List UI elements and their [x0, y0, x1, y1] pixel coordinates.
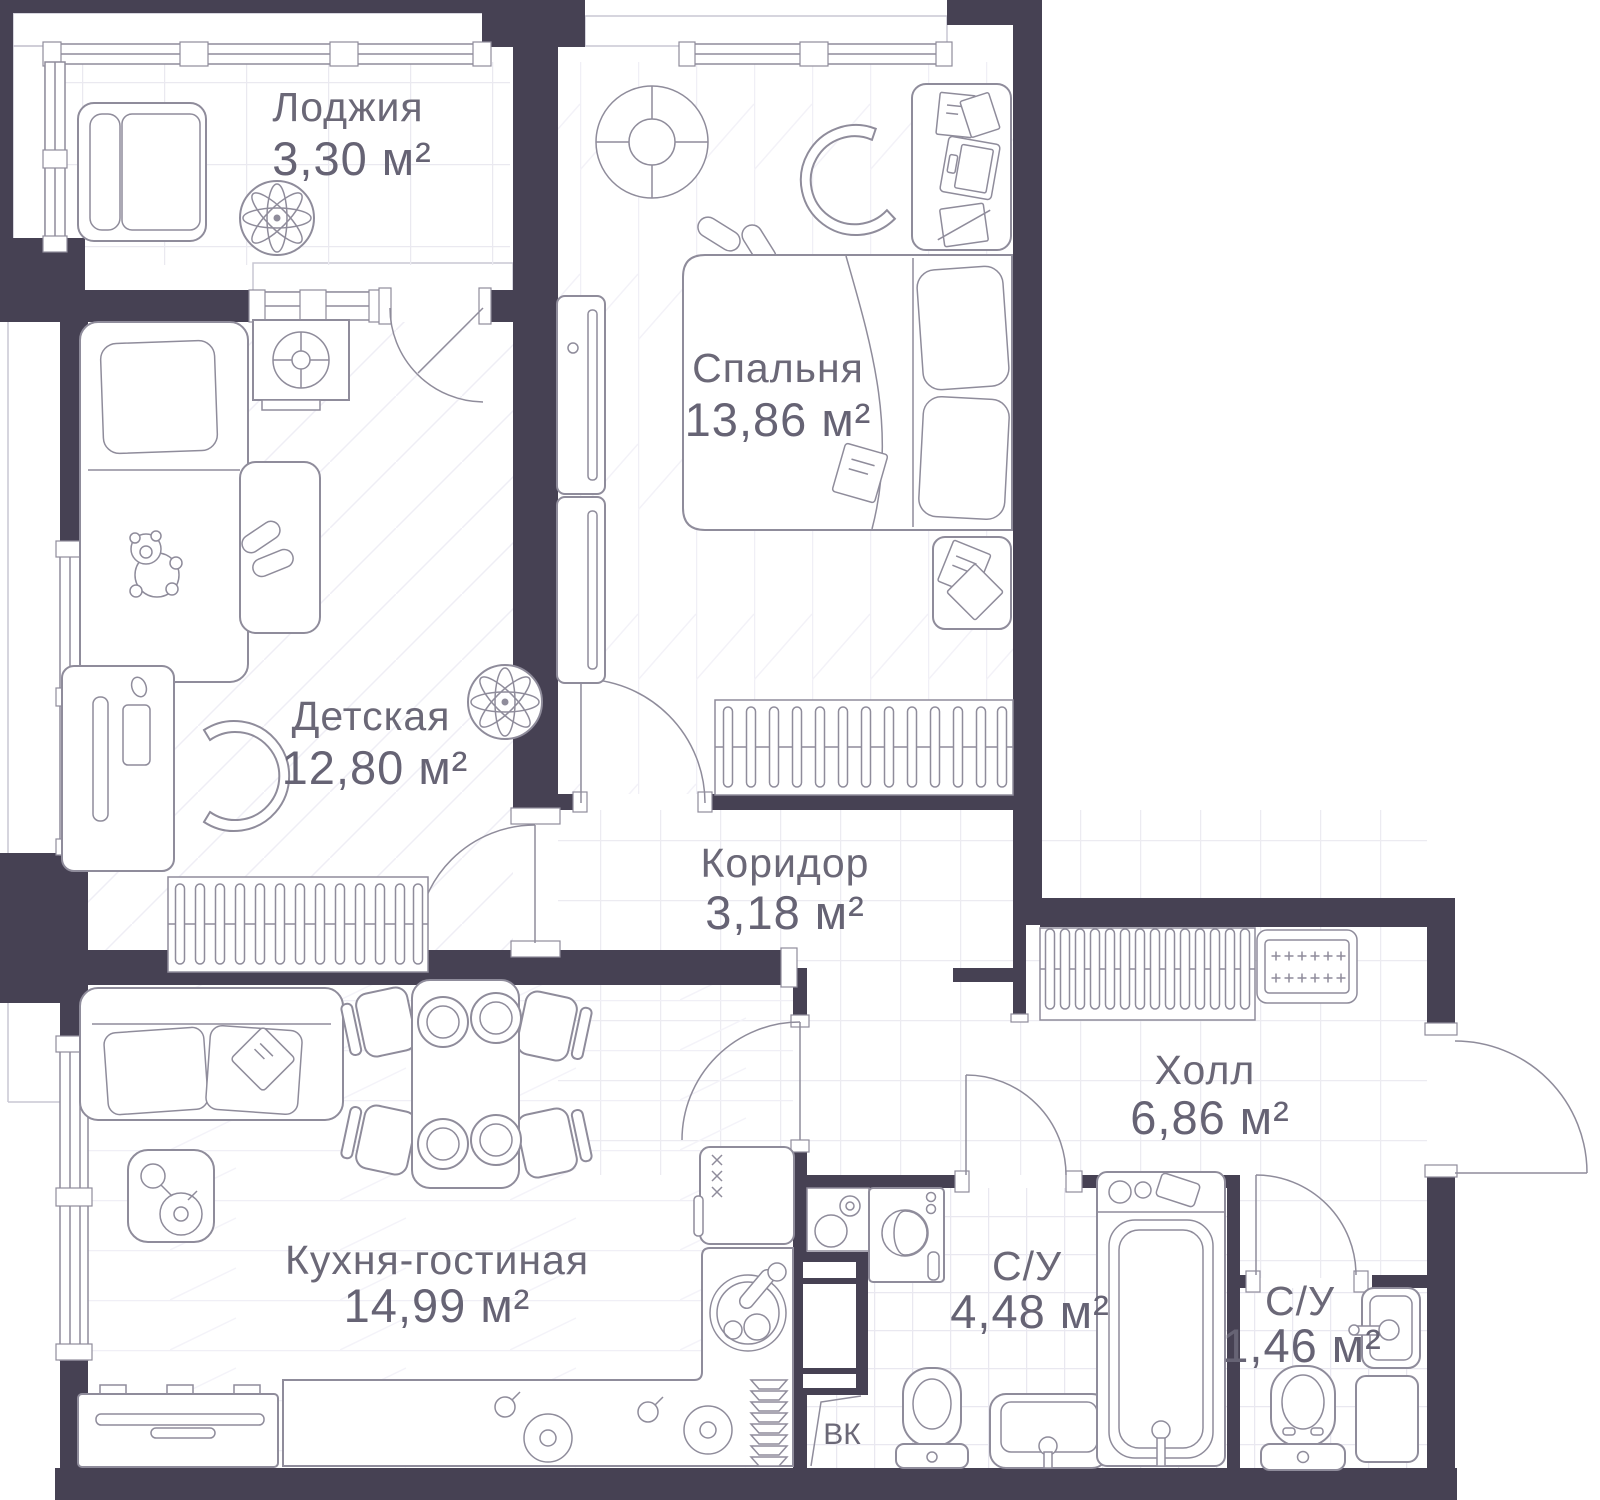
- floor-plan-page: Лоджия 3,30 м² Спальня 13,86 м² Детская …: [0, 0, 1600, 1500]
- keyboard-icon: [123, 705, 150, 765]
- plate-icon: [418, 1119, 468, 1169]
- desk-icon: [912, 84, 1011, 250]
- sofa-icon: [80, 988, 343, 1120]
- sink-icon: [990, 1394, 1108, 1468]
- stove-burner-icon: [684, 1406, 732, 1454]
- wardrobe-icon: [715, 700, 1013, 795]
- plant-icon: [468, 665, 542, 739]
- hall-wardrobe-icon: [1040, 928, 1255, 1020]
- room-hall-floor-right: [1240, 1175, 1427, 1278]
- armchair-icon: [78, 103, 206, 241]
- bathtub-icon: [1097, 1172, 1225, 1466]
- vanity-sink-icon: [807, 1188, 869, 1251]
- children-window-icon: [249, 290, 385, 322]
- monitor-icon: [93, 697, 108, 821]
- tv-console-icon: [557, 296, 605, 683]
- toilet-icon: [896, 1368, 968, 1468]
- floor-plan: Лоджия 3,30 м² Спальня 13,86 м² Детская …: [0, 0, 1600, 1500]
- loggia-window-left-icon: [43, 62, 67, 252]
- plate-icon: [418, 997, 468, 1047]
- room-label-kitchen-name: Кухня-гостиная: [285, 1237, 589, 1283]
- room-label-hall-area: 6,86 м²: [1130, 1091, 1290, 1144]
- bedroom-window-icon: [679, 42, 952, 66]
- children-desk-icon: [62, 666, 174, 871]
- room-label-wc-name: С/У: [1265, 1278, 1335, 1324]
- play-mat-icon: [128, 1150, 214, 1242]
- room-label-kitchen-area: 14,99 м²: [344, 1279, 531, 1332]
- room-label-bedroom-area: 13,86 м²: [685, 393, 872, 446]
- room-label-loggia-area: 3,30 м²: [272, 132, 432, 185]
- room-label-bathroom-area: 4,48 м²: [950, 1285, 1110, 1338]
- room-label-corridor-area: 3,18 м²: [705, 886, 865, 939]
- plant-icon: [240, 181, 314, 255]
- room-label-children-area: 12,80 м²: [282, 741, 469, 794]
- plate-icon: [471, 993, 521, 1043]
- room-label-children-name: Детская: [292, 693, 451, 739]
- cabinet-icon: [253, 320, 349, 410]
- toilet-icon: [1261, 1366, 1345, 1470]
- children-bed-icon: [80, 322, 248, 682]
- wall-end-cap: [1011, 1014, 1028, 1022]
- washing-machine-icon: [869, 1188, 944, 1282]
- nightstand-icon: [933, 537, 1011, 629]
- wall-end-cap: [781, 948, 797, 987]
- cabinet-icon: [1356, 1376, 1418, 1462]
- room-label-loggia-name: Лоджия: [272, 84, 423, 130]
- room-label-corridor-name: Коридор: [701, 840, 870, 886]
- ceiling-light-icon: [596, 86, 708, 198]
- room-label-bathroom-name: С/У: [992, 1243, 1062, 1289]
- duct-label: ВК: [823, 1418, 861, 1451]
- room-label-hall-name: Холл: [1155, 1047, 1256, 1093]
- fridge-icon: [694, 1147, 794, 1244]
- children-wardrobe-icon: [168, 877, 428, 972]
- sideboard-icon: [78, 1385, 278, 1467]
- doormat-icon: [1257, 930, 1357, 1003]
- room-label-wc-area: 1,46 м²: [1222, 1319, 1382, 1372]
- stove-burner-icon: [524, 1414, 572, 1462]
- loggia-window-top-icon: [43, 42, 491, 66]
- room-label-bedroom-name: Спальня: [692, 345, 864, 391]
- plate-icon: [471, 1115, 521, 1165]
- laptop-icon: [940, 136, 1001, 200]
